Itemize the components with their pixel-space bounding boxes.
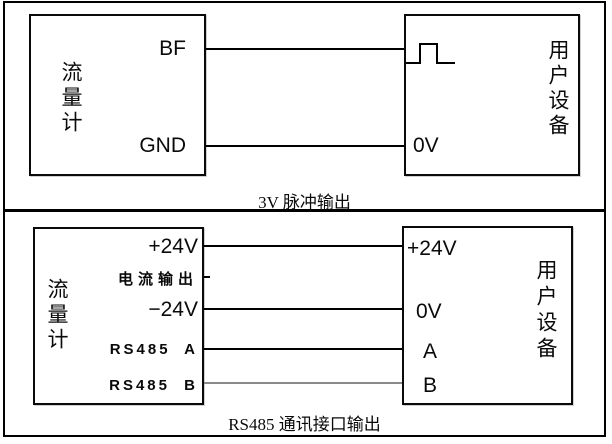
user-device-title: 用户设备 bbox=[542, 39, 572, 139]
pulse-waveform-icon bbox=[405, 42, 457, 66]
pin-label-gnd: GND bbox=[139, 135, 186, 157]
pin-label-rs485-a: RS485 A bbox=[110, 339, 198, 361]
wiring-diagram-page: 流量计 BF GND 0V 用户设备 3V 脉冲输出 流量计 +24V 电流输出… bbox=[0, 0, 612, 444]
pin-label-0v-pulse: 0V bbox=[413, 135, 439, 157]
wire-plus24v bbox=[204, 245, 402, 247]
pin-label-bf: BF bbox=[159, 38, 186, 60]
wire-bf bbox=[206, 48, 404, 50]
flowmeter-title: 流量计 bbox=[55, 61, 85, 136]
pin-label-current-output: 电流输出 bbox=[118, 269, 198, 291]
wire-rs485-b bbox=[204, 382, 402, 384]
pin-label-b: B bbox=[423, 375, 437, 397]
pin-label-plus24v-right: +24V bbox=[407, 238, 457, 260]
wire-rs485-a bbox=[204, 348, 402, 350]
wire-stub-current-output bbox=[204, 276, 210, 278]
pin-label-rs485-b: RS485 B bbox=[109, 375, 198, 397]
pin-label-plus24v-left: +24V bbox=[148, 236, 198, 258]
wire-gnd bbox=[206, 145, 404, 147]
flowmeter-title-rs485: 流量计 bbox=[41, 278, 71, 353]
caption-rs485-output: RS485 通讯接口输出 bbox=[3, 410, 606, 435]
pin-label-minus24v: −24V bbox=[148, 299, 198, 321]
wire-minus24v-to-0v bbox=[204, 308, 402, 310]
user-device-title-rs485: 用户设备 bbox=[530, 259, 560, 363]
caption-pulse-output: 3V 脉冲输出 bbox=[3, 188, 606, 213]
pin-label-0v-rs485: 0V bbox=[416, 301, 442, 323]
pin-label-a: A bbox=[423, 341, 437, 363]
